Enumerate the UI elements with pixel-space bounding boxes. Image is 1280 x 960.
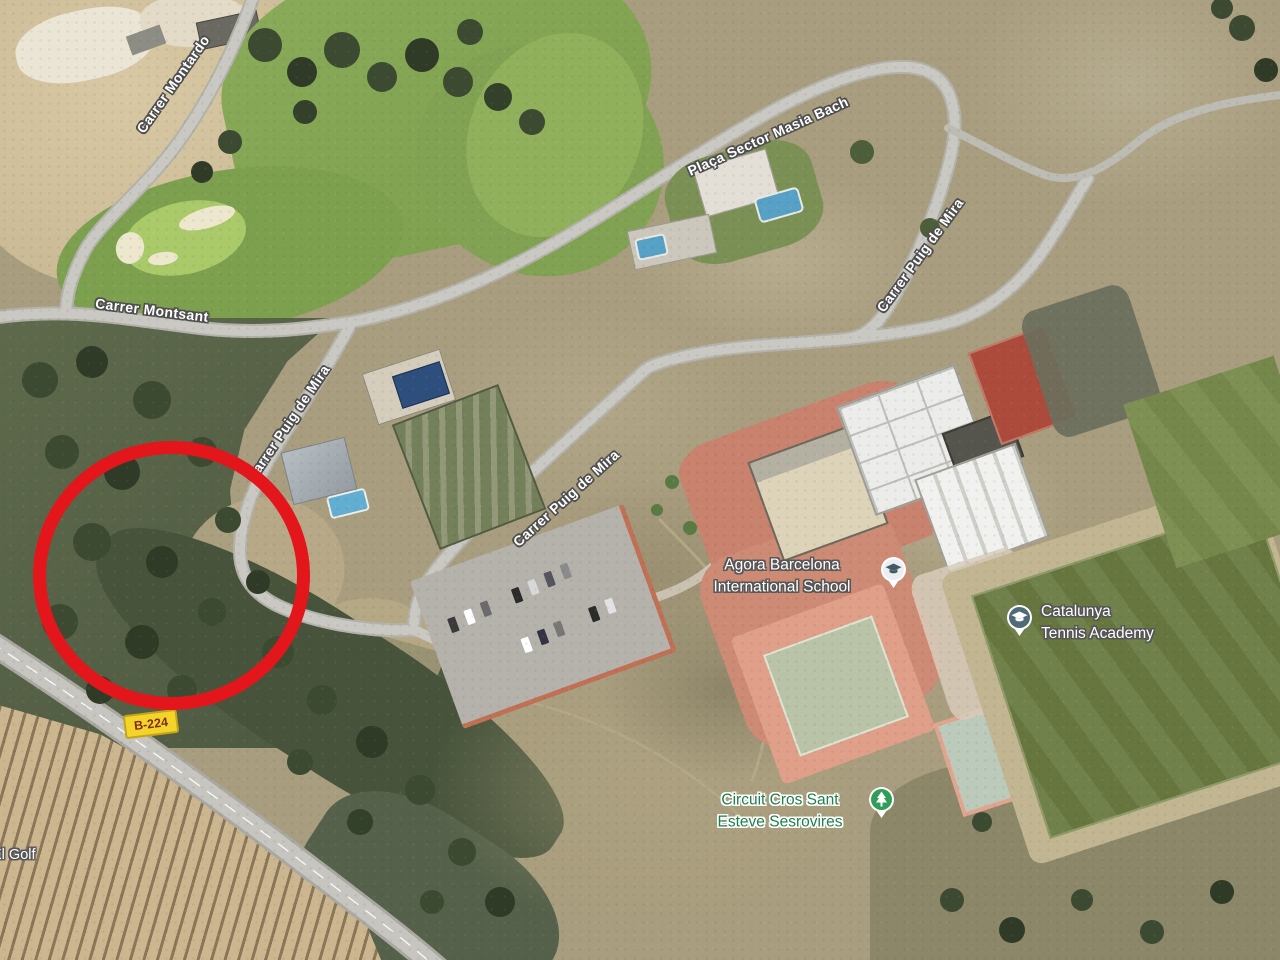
- parked-car: [588, 606, 601, 623]
- poi-label-circuit-cros-sant-esteve-sesrovires[interactable]: Circuit Cros Sant Esteve Sesrovires: [718, 790, 843, 835]
- poi-label-agora-barcelona-international-school[interactable]: Agora Barcelona International School: [713, 555, 850, 600]
- poi-line: Circuit Cros Sant: [718, 790, 843, 812]
- poi-line: Catalunya: [1041, 601, 1154, 623]
- parked-car: [520, 637, 533, 654]
- parked-car: [604, 598, 617, 615]
- poi-label-catalunya-tennis-academy[interactable]: Catalunya Tennis Academy: [1041, 601, 1154, 646]
- road-carrer-montardo: [66, 0, 255, 312]
- parked-car: [537, 629, 550, 646]
- parked-car: [511, 587, 524, 604]
- parked-car: [463, 608, 476, 625]
- poi-line: Esteve Sesrovires: [718, 812, 843, 834]
- parked-car: [527, 579, 540, 596]
- parked-car: [560, 563, 573, 580]
- road-northeast-trail: [948, 94, 1280, 178]
- poi-line: Agora Barcelona: [713, 555, 850, 577]
- highlight-circle-annotation: [33, 441, 310, 710]
- school-pin-icon[interactable]: [1006, 604, 1033, 637]
- poi-line: El Golf: [0, 845, 36, 866]
- poi-line: International School: [713, 577, 850, 599]
- poi-line: Tennis Academy: [1041, 623, 1154, 645]
- road-placa-surface: [352, 67, 955, 339]
- parked-car: [553, 620, 566, 637]
- parked-car: [480, 600, 493, 617]
- satellite-map[interactable]: Carrer Montardo Plaça Sector Masia Bach …: [0, 0, 1280, 960]
- park-pin-icon[interactable]: [868, 786, 895, 819]
- poi-label-el-golf[interactable]: El Golf: [0, 845, 36, 866]
- dirt-trail: [520, 700, 742, 818]
- parked-car: [447, 616, 460, 633]
- parked-car: [543, 571, 556, 588]
- school-pin-icon[interactable]: [880, 556, 907, 589]
